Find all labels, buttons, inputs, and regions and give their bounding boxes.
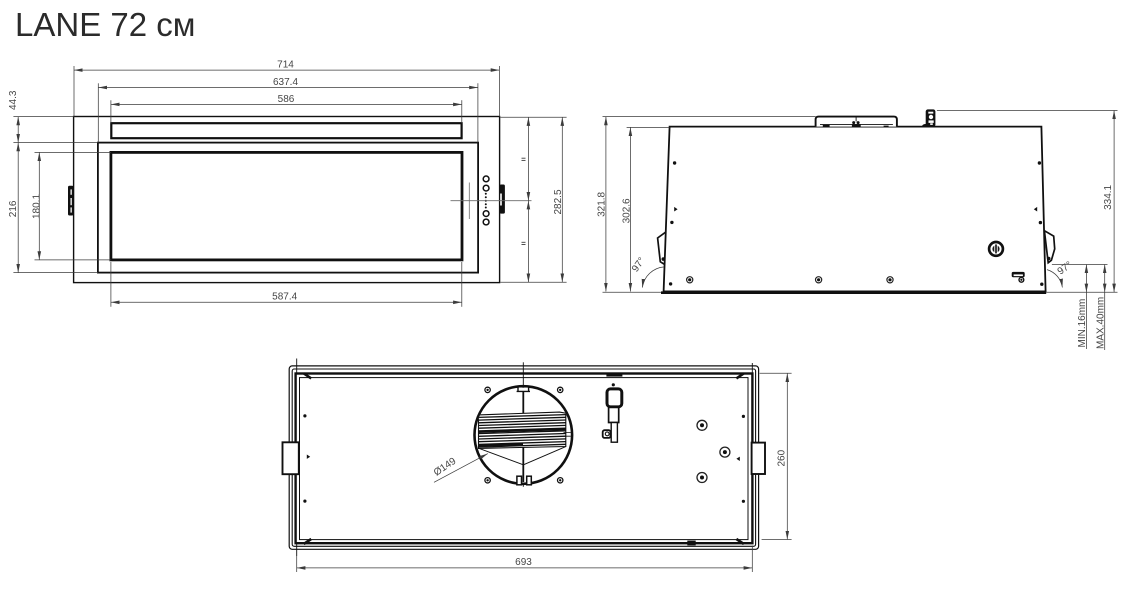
svg-text:334.1: 334.1 — [1103, 184, 1114, 209]
svg-text:637.4: 637.4 — [273, 77, 298, 88]
svg-text:216: 216 — [8, 200, 19, 217]
svg-text:MAX.40mm: MAX.40mm — [1096, 297, 1107, 349]
svg-text:587.4: 587.4 — [272, 292, 297, 303]
svg-text:586: 586 — [278, 94, 295, 105]
svg-text:321.8: 321.8 — [596, 191, 607, 216]
svg-text:44.3: 44.3 — [8, 90, 19, 110]
svg-text:180.1: 180.1 — [31, 194, 42, 219]
svg-text:97°: 97° — [1056, 260, 1075, 278]
svg-text:LANE 72 см: LANE 72 см — [15, 6, 195, 43]
svg-text:260: 260 — [776, 449, 787, 466]
svg-text:282.5: 282.5 — [553, 189, 564, 214]
svg-text:693: 693 — [515, 557, 532, 568]
svg-text:714: 714 — [277, 60, 294, 71]
svg-text:97°: 97° — [630, 256, 648, 275]
svg-text:MIN.16mm: MIN.16mm — [1077, 299, 1088, 348]
svg-text:302.6: 302.6 — [622, 198, 633, 223]
